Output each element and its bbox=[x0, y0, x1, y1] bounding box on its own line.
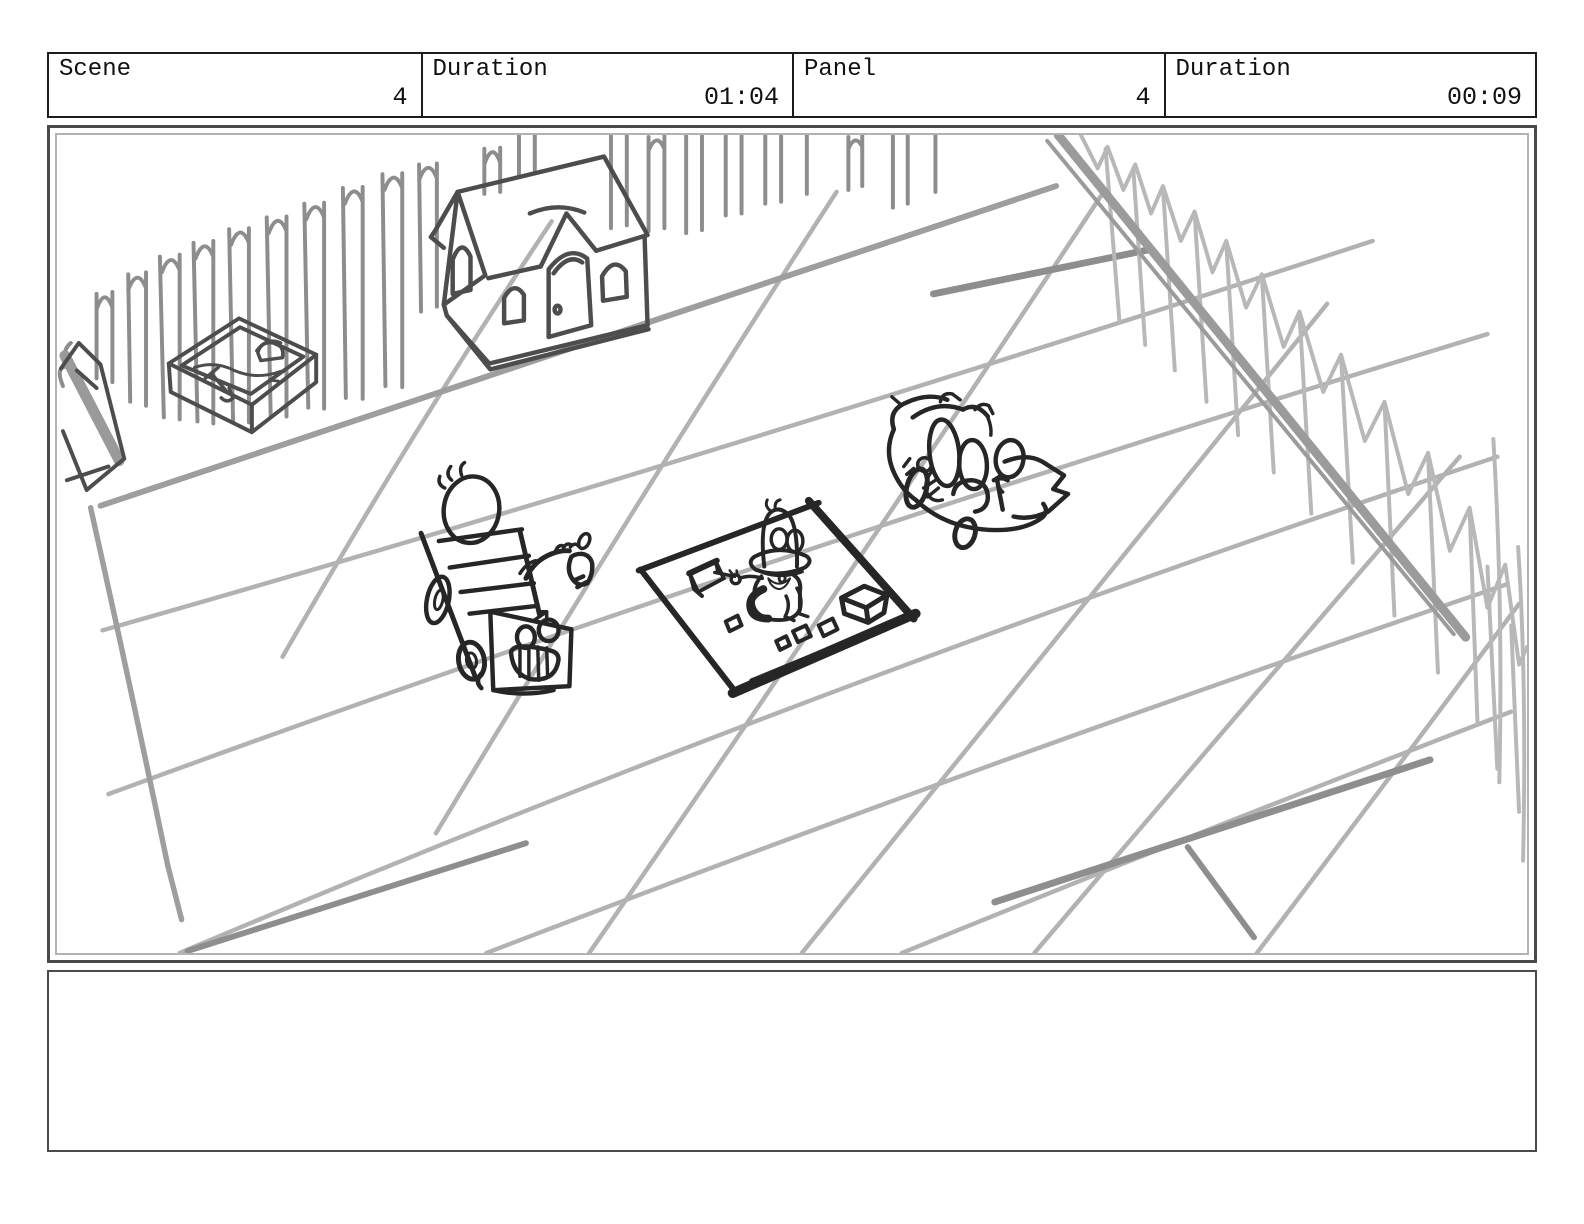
panel-cell: Panel 4 bbox=[792, 54, 1164, 116]
sandbox bbox=[169, 318, 316, 432]
playhouse bbox=[431, 157, 649, 370]
picket-fence-left bbox=[60, 135, 936, 423]
panel-duration-label: Duration bbox=[1176, 57, 1291, 83]
scene-cell: Scene 4 bbox=[49, 54, 421, 116]
duck-figure bbox=[715, 497, 810, 621]
scene-label: Scene bbox=[59, 57, 131, 83]
storyboard-panel bbox=[47, 125, 1537, 963]
panel-duration-cell: Duration 00:09 bbox=[1164, 54, 1536, 116]
scene-duration-label: Duration bbox=[433, 57, 548, 83]
toy-car bbox=[885, 390, 1068, 551]
notes-box bbox=[47, 970, 1537, 1152]
panel-info-table: Scene 4 Duration 01:04 Panel 4 Duration … bbox=[47, 52, 1537, 118]
panel-label: Panel bbox=[804, 57, 876, 83]
scene-value: 4 bbox=[392, 85, 407, 111]
panel-value: 4 bbox=[1135, 85, 1150, 111]
corner-post bbox=[61, 343, 124, 490]
ride-on-toy bbox=[415, 463, 599, 702]
scene-duration-value: 01:04 bbox=[704, 85, 779, 111]
grid-accents bbox=[188, 250, 1430, 951]
storyboard-panel-inner bbox=[55, 133, 1529, 955]
car-riders bbox=[924, 418, 1026, 512]
storyboard-sketch bbox=[57, 135, 1527, 953]
panel-duration-value: 00:09 bbox=[1447, 85, 1522, 111]
scene-duration-cell: Duration 01:04 bbox=[421, 54, 793, 116]
